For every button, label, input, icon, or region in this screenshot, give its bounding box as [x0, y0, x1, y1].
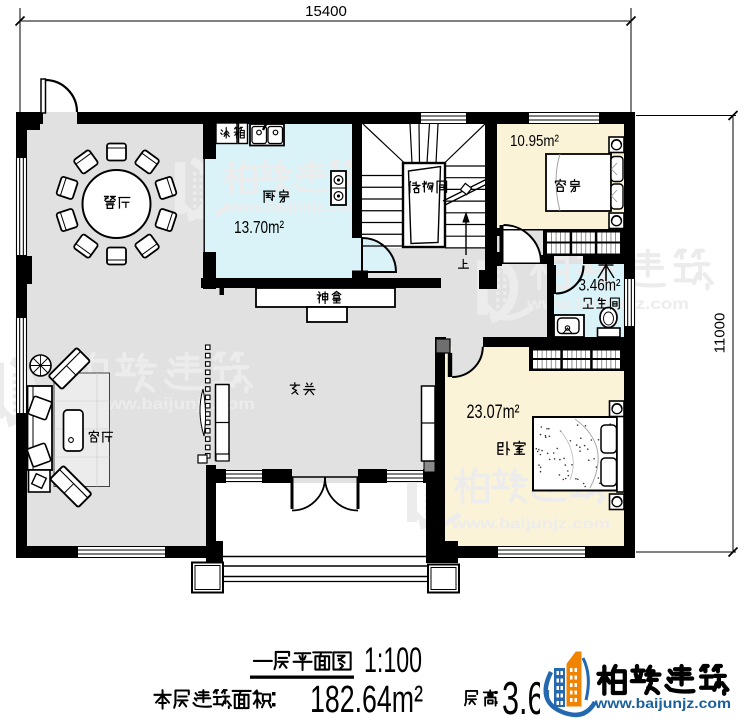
svg-text:11000: 11000	[712, 313, 729, 354]
svg-text:13.70m²: 13.70m²	[234, 217, 284, 237]
svg-text:www.baijunjz.com: www.baijunjz.com	[92, 396, 255, 413]
svg-text:www.baijunjz.com: www.baijunjz.com	[594, 695, 731, 711]
svg-text:23.07m²: 23.07m²	[467, 402, 520, 423]
svg-text:www.baijunjz.com: www.baijunjz.com	[451, 516, 610, 533]
svg-text:3.46m²: 3.46m²	[579, 277, 621, 295]
svg-text:15400: 15400	[305, 3, 347, 20]
svg-text:10.95m²: 10.95m²	[510, 133, 560, 150]
svg-text:182.64m²: 182.64m²	[310, 679, 423, 721]
svg-text:1:100: 1:100	[364, 641, 422, 680]
